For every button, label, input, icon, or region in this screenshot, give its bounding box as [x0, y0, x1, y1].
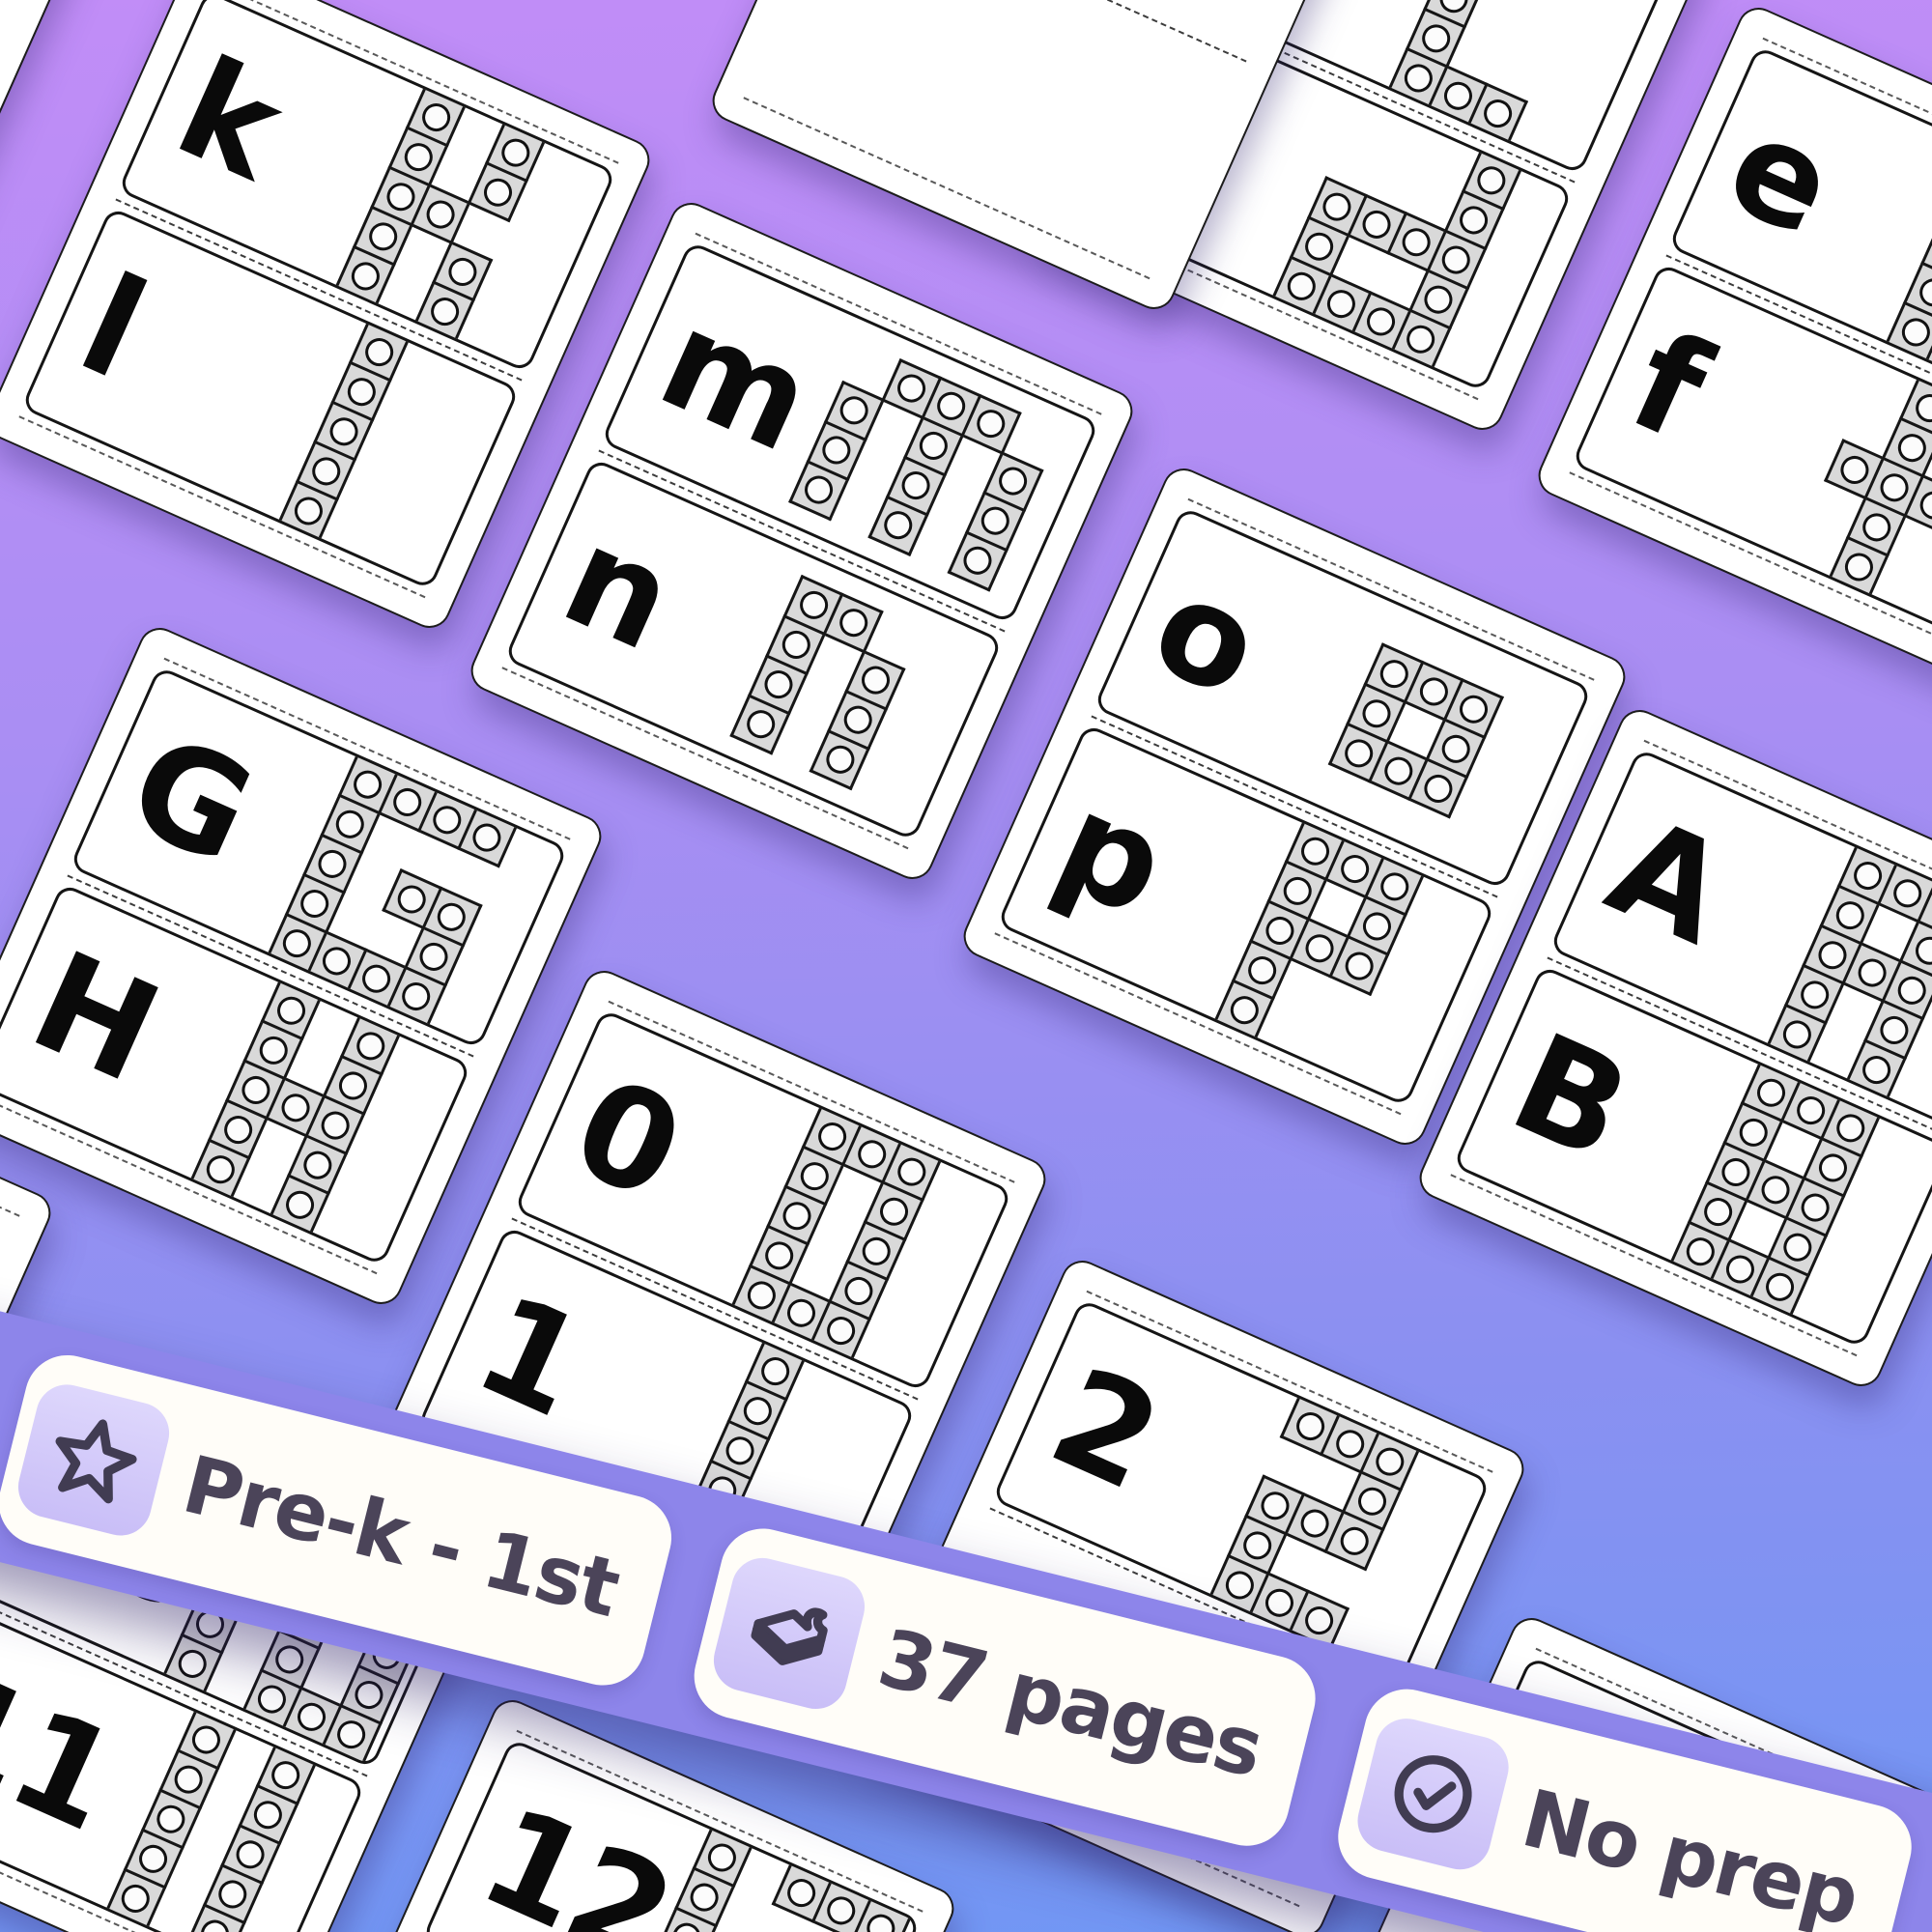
brick-grid [1271, 97, 1522, 370]
brick-stud [1437, 241, 1474, 277]
brick-stud [393, 880, 430, 917]
brick-stud [1221, 1566, 1258, 1603]
brick-stud [1752, 1073, 1789, 1110]
brick-stud [1358, 907, 1395, 944]
brick-stud [238, 1071, 274, 1108]
brick-stud [863, 1910, 899, 1932]
brick-stud [1403, 321, 1439, 357]
brick-stud [782, 1293, 819, 1330]
brick-stud [343, 373, 380, 410]
brick-stud [268, 1756, 304, 1793]
brick-stud [1893, 972, 1930, 1009]
brick-stud [1301, 228, 1338, 265]
brick-stud [1340, 734, 1377, 771]
brick-stud [1757, 1171, 1794, 1207]
brick-grid [1788, 359, 1932, 614]
brick-stud [1238, 1526, 1275, 1563]
brick-stud [1336, 1522, 1373, 1559]
brick-stud [813, 1118, 850, 1154]
brick-stud [835, 604, 871, 640]
brick-stud [880, 507, 917, 544]
brick-stud [1854, 953, 1890, 990]
brick-stud [278, 924, 315, 961]
brick-stud [319, 942, 355, 979]
brick-stud [1915, 273, 1932, 310]
brick-stud [743, 1276, 780, 1313]
brick-stud [352, 1027, 388, 1064]
brick-stud [1858, 508, 1894, 545]
brick-stud [893, 1152, 929, 1189]
brick-stud [1301, 929, 1338, 966]
brick-stud [214, 1875, 251, 1912]
brick-stud [1814, 936, 1851, 973]
brick-stud [1893, 429, 1930, 466]
brick-stud [801, 471, 838, 508]
brick-stud [281, 1186, 318, 1223]
brick-stud [796, 1157, 833, 1194]
brick-stud [1435, 0, 1472, 16]
brick-stud [1417, 19, 1454, 56]
brick-stud [153, 1801, 189, 1837]
brick-grid [278, 321, 411, 541]
brick-grid [105, 1709, 317, 1932]
brick-stud [175, 1645, 212, 1682]
brick-stud [995, 463, 1032, 499]
brick-stud [254, 1681, 291, 1718]
brick-grid [730, 574, 924, 789]
brick-stud [197, 1916, 234, 1932]
brick-stud [347, 257, 384, 294]
brick-stud [1849, 857, 1886, 894]
brick-stud [1420, 770, 1457, 807]
brick-stud [1718, 1153, 1754, 1190]
brick-grid [334, 86, 546, 341]
brick-stud [333, 1716, 370, 1752]
brick-stud [364, 217, 401, 254]
brick-stud [1283, 268, 1320, 304]
brick-stud [836, 392, 872, 429]
brick-stud [778, 626, 814, 663]
brick-stud [1415, 672, 1452, 709]
brick-stud [1796, 976, 1833, 1012]
brick-stud [1761, 1268, 1798, 1305]
brick-stud [973, 406, 1009, 442]
brick-stud [334, 1066, 371, 1103]
brick-stud [1226, 991, 1263, 1028]
brick-grid [730, 1105, 942, 1360]
brick-stud [756, 1352, 793, 1389]
brick-stud [415, 938, 452, 975]
brick-stud [1858, 1051, 1894, 1088]
brick-stud [400, 138, 437, 175]
brick-stud [1911, 931, 1932, 968]
brick-grid [1208, 1395, 1420, 1650]
flashcard [0, 0, 56, 122]
brick-stud [1836, 451, 1873, 488]
brick-stud [317, 1106, 354, 1143]
brick-stud [1279, 872, 1316, 909]
brick-stud [219, 1111, 256, 1148]
brick-stud [422, 195, 459, 232]
brick-stud [779, 1197, 815, 1234]
brick-stud [1437, 730, 1474, 767]
brick-stud [1400, 59, 1436, 96]
brick-stud [1336, 850, 1373, 887]
brick-stud [297, 885, 333, 922]
brick-stud [1353, 1482, 1390, 1519]
brick-stud [1262, 912, 1298, 949]
brick-stud [1928, 892, 1932, 928]
brick-stud [1420, 281, 1457, 318]
brick-grid [1669, 1062, 1881, 1317]
brick-stud [1456, 201, 1492, 238]
brick-stud [170, 1761, 207, 1798]
brick-stud [853, 1135, 890, 1172]
brick-grid [189, 980, 401, 1235]
brick-stud [894, 370, 930, 407]
brick-stud [1358, 695, 1395, 731]
brick-stud [326, 412, 362, 449]
brick-stud [1897, 313, 1932, 350]
brick-letter-figure [0, 0, 9, 20]
brick-stud [1363, 302, 1400, 339]
brick-stud [358, 960, 395, 997]
brick-stud [272, 991, 309, 1028]
badge-label: Pre-k - 1st [175, 1438, 627, 1634]
brick-stud [398, 978, 435, 1014]
brick-letter-figure [939, 55, 1197, 170]
brick-stud [469, 818, 505, 855]
product-cover: k l m n c d [0, 0, 1932, 1932]
brick-stud [1889, 874, 1925, 911]
brick-stud [1379, 752, 1416, 788]
brick-stud [429, 801, 466, 838]
brick-stud [1832, 896, 1868, 933]
brick-stud [840, 1272, 877, 1309]
brick-stud [875, 1192, 912, 1229]
brick-stud [823, 1891, 860, 1928]
brick-stud [350, 766, 386, 803]
brick-stud [1479, 95, 1516, 131]
card-letter [793, 0, 940, 55]
brick-stud [795, 586, 832, 623]
brick-stud [783, 1874, 820, 1911]
brick-stud [1376, 867, 1412, 904]
brick-stud [1876, 469, 1913, 505]
brick-stud [1840, 548, 1877, 584]
brick-stud [759, 666, 796, 702]
brick-stud [232, 1835, 269, 1872]
brick-stud [933, 387, 970, 424]
brick-stud [1797, 1188, 1833, 1225]
brick-stud [760, 1236, 797, 1273]
brick-grid [1885, 142, 1932, 397]
brick-stud [426, 293, 463, 329]
brick-grid [1213, 820, 1425, 1075]
brick-stud [250, 1796, 287, 1833]
brick-stud [497, 133, 533, 170]
brick-stud [1296, 1504, 1333, 1541]
brick-stud [1261, 1583, 1297, 1620]
brick-stud [1911, 389, 1932, 426]
brick-stud [1243, 952, 1280, 988]
brick-stud [822, 1312, 859, 1349]
brick-stud [1257, 1487, 1293, 1523]
brick-stud [1778, 1015, 1815, 1052]
brick-stud [433, 898, 469, 935]
brick-stud [1398, 223, 1435, 260]
brick-stud [978, 502, 1014, 539]
pages-icon [707, 1551, 871, 1716]
brick-stud [739, 1392, 776, 1429]
brick-stud [1735, 1114, 1772, 1151]
brick-stud [1814, 1149, 1851, 1185]
brick-stud [1376, 655, 1412, 692]
check-icon [1350, 1712, 1515, 1876]
brick-stud [351, 1676, 387, 1713]
brick-stud [897, 468, 934, 504]
brick-stud [135, 1840, 172, 1877]
brick-stud [1832, 1109, 1868, 1146]
brick-stud [839, 701, 876, 738]
brick-stud [1319, 188, 1355, 225]
brick-stud [668, 1918, 705, 1932]
brick-stud [959, 542, 996, 579]
brick-stud [255, 1032, 292, 1068]
brick-stud [916, 428, 952, 465]
star-icon [12, 1378, 176, 1543]
brick-stud [1699, 1193, 1736, 1230]
brick-stud [1439, 76, 1476, 113]
brick-stud [314, 845, 351, 882]
brick-stud [1322, 285, 1359, 322]
brick-stud [821, 741, 858, 778]
brick-stud [1792, 1092, 1829, 1128]
brick-stud [742, 705, 779, 742]
brick-stud [1916, 486, 1932, 523]
brick-stud [389, 783, 426, 820]
brick-stud [1721, 1250, 1758, 1287]
brick-stud [818, 432, 855, 469]
brick-stud [1473, 161, 1510, 198]
brick-stud [1358, 206, 1395, 242]
card-letter: 12 [441, 1777, 688, 1932]
badge-label: No prep [1514, 1773, 1866, 1932]
brick-stud [857, 662, 894, 698]
brick-stud [417, 99, 454, 135]
brick-stud [188, 1721, 225, 1758]
brick-stud [722, 1432, 758, 1468]
brick-stud [1455, 690, 1492, 726]
brick-stud [1876, 1011, 1913, 1048]
brick-stud [298, 1146, 335, 1182]
brick-stud [1341, 947, 1378, 983]
brick-grid [1766, 844, 1932, 1099]
brick-stud [383, 178, 419, 214]
brick-stud [290, 492, 327, 528]
brick-stud [704, 1839, 741, 1876]
brick-stud [1371, 1442, 1407, 1479]
brick-grid [1328, 642, 1504, 818]
brick-stud [1331, 1425, 1368, 1462]
brick-stud [1682, 1233, 1719, 1269]
brick-stud [686, 1879, 723, 1916]
brick-stud [294, 1698, 330, 1735]
brick-stud [1292, 1407, 1328, 1444]
brick-stud [479, 173, 516, 210]
brick-stud [202, 1151, 239, 1187]
flashcard [746, 0, 1245, 271]
brick-grid [267, 753, 518, 1027]
brick-stud [1300, 1602, 1337, 1638]
brick-stud [307, 452, 344, 489]
brick-stud [277, 1089, 314, 1125]
brick-stud [118, 1880, 155, 1917]
brick-stud [360, 333, 397, 370]
brick-stud [1296, 832, 1333, 868]
brick-stud [331, 806, 368, 842]
badge-label: 37 pages [870, 1612, 1271, 1796]
brick-stud [1778, 1228, 1815, 1264]
brick-stud [271, 1640, 308, 1677]
brick-stud [444, 253, 481, 290]
brick-stud [858, 1233, 895, 1269]
